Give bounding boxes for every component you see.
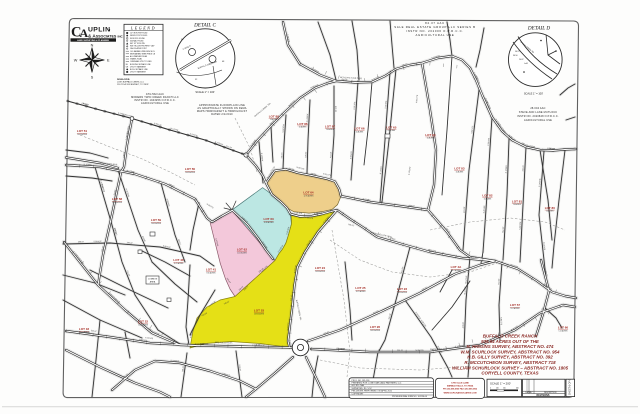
svg-text:LOT 84: LOT 84 [425, 133, 436, 137]
svg-text:LOT 51: LOT 51 [77, 129, 88, 133]
svg-text:28.004 AAC: 28.004 AAC [530, 107, 545, 110]
svg-text:LOT 23: LOT 23 [397, 287, 408, 291]
svg-text:N 12'04'E: N 12'04'E [506, 164, 508, 173]
svg-text:LOT 58: LOT 58 [112, 197, 123, 201]
svg-text:PH 325.388.3800 FAX 325.388.38: PH 325.388.3800 FAX 325.388.3802 [443, 388, 478, 391]
svg-text:SCALE 1" = 200': SCALE 1" = 200' [490, 382, 511, 386]
svg-text:LOT 66: LOT 66 [354, 127, 365, 131]
svg-text:LOT 87: LOT 87 [325, 124, 336, 128]
svg-text:CORYELL COUNTY, TEXAS: CORYELL COUNTY, TEXAS [481, 371, 538, 376]
svg-text:W/N YELLOW PROPERTY CAP: W/N YELLOW PROPERTY CAP [130, 45, 155, 48]
svg-text:939.94 ACRES OUT OF THE: 939.94 ACRES OUT OF THE [481, 339, 540, 344]
svg-text:110 CR 40 200 BURNET, TX 78611: 110 CR 40 200 BURNET, TX 78611 [117, 83, 149, 86]
svg-text:LOT 88: LOT 88 [269, 114, 280, 118]
svg-text:INSTR NO. 2020848 O.P.R.C.C.: INSTR NO. 2020848 O.P.R.C.C. [517, 115, 559, 118]
svg-text:LOT 4A: LOT 4A [451, 265, 463, 269]
svg-text:36.50: 36.50 [513, 55, 518, 57]
svg-text:BLDG. SETBACK LINE: BLDG. SETBACK LINE [130, 68, 149, 71]
svg-text:H. HIGGINS SURVEY, ABSTRACT: H. HIGGINS SURVEY, ABSTRACT NO. 474 [466, 344, 554, 349]
svg-text:SCALE 1" = 100': SCALE 1" = 100' [195, 90, 215, 94]
svg-text:100: 100 [496, 388, 499, 390]
svg-text:LOT 26: LOT 26 [370, 325, 381, 329]
svg-text:AGRICULTURAL USE: AGRICULTURAL USE [415, 33, 454, 37]
svg-text:LOT 80: LOT 80 [545, 206, 556, 210]
svg-text:N 89'12'E: N 89'12'E [416, 350, 425, 352]
svg-text:LOT 65: LOT 65 [386, 125, 397, 129]
svg-text:AGRICULTURAL USE: AGRICULTURAL USE [524, 119, 552, 122]
svg-text:230.15': 230.15' [523, 164, 525, 171]
svg-text:LOT 41: LOT 41 [206, 268, 217, 272]
svg-text:S 88'41'E: S 88'41'E [93, 241, 102, 243]
svg-text:UTILITY EASEMENT: UTILITY EASEMENT [130, 65, 146, 68]
svg-text:56.21: 56.21 [515, 51, 520, 53]
svg-text:MARBLE FALLS, TX 78654: MARBLE FALLS, TX 78654 [447, 385, 474, 388]
svg-text:LOT 57: LOT 57 [510, 303, 521, 307]
svg-text:DETAIL C: DETAIL C [193, 23, 216, 29]
svg-text:24.87: 24.87 [519, 59, 524, 61]
svg-text:OVERHEAD UTILITY LINES: OVERHEAD UTILITY LINES [130, 60, 152, 63]
svg-text:LOT 22: LOT 22 [138, 320, 149, 324]
svg-text:W.M. SCURLOCK SURVEY, ABSTR: W.M. SCURLOCK SURVEY, ABSTRACT NO. 954 [461, 349, 560, 354]
svg-text:BUILDING SETBACK LINE: BUILDING SETBACK LINE [130, 63, 151, 66]
svg-text:LOT 82: LOT 82 [482, 194, 493, 198]
svg-text:L=41: L=41 [524, 63, 528, 65]
svg-text:N 03'27'E: N 03'27'E [500, 317, 502, 326]
svg-text:LOT 81: LOT 81 [512, 199, 523, 203]
svg-text:LOT 66: LOT 66 [558, 326, 569, 330]
svg-text:SHEET 6 OF 6: SHEET 6 OF 6 [569, 378, 572, 395]
svg-text:BUFFALO CREEK RANCH: BUFFALO CREEK RANCH [483, 334, 538, 339]
svg-text:S 14'55'W: S 14'55'W [195, 343, 204, 345]
svg-text:400: 400 [516, 388, 519, 390]
svg-text:LOT 40: LOT 40 [173, 258, 184, 262]
svg-text:WILLIAM SCHURLOCK SURVEY –: WILLIAM SCHURLOCK SURVEY – ABSTRACT NO. … [452, 365, 569, 370]
svg-text:H.B. GILLY SURVEY, ABSTRACT: H.B. GILLY SURVEY, ABSTRACT NO. 392 [467, 355, 553, 360]
svg-text:LOT 83: LOT 83 [454, 167, 465, 171]
svg-text:230.15': 230.15' [397, 350, 404, 352]
svg-text:UTILITY EASEMENT: UTILITY EASEMENT [130, 71, 146, 74]
svg-text:1789 OLLIE LANE: 1789 OLLIE LANE [451, 382, 469, 385]
svg-text:LOT 24: LOT 24 [315, 266, 326, 270]
svg-text:COMMON: COMMON [148, 279, 158, 281]
svg-text:60d NAIL FOUND: 60d NAIL FOUND [130, 39, 144, 42]
svg-text:410.08': 410.08' [463, 321, 465, 328]
svg-text:230.15': 230.15' [548, 148, 555, 150]
svg-text:LOT 64: LOT 64 [303, 191, 314, 195]
svg-text:LAND SURVEYING & PLANNING: LAND SURVEYING & PLANNING [77, 39, 109, 42]
svg-text:198.22': 198.22' [305, 151, 307, 158]
svg-text:WWW.CUPLINASSOCIATES.COM: WWW.CUPLINASSOCIATES.COM [444, 392, 477, 395]
svg-text:R. MCCUTCHEON SURVEY, ABSTR: R. MCCUTCHEON SURVEY, ABSTRACT 718 [464, 360, 556, 365]
svg-text:LOT 53: LOT 53 [254, 309, 265, 313]
svg-text:STEVE AND LANE MUTLOCK: STEVE AND LANE MUTLOCK [519, 111, 558, 114]
svg-text:CALCULATED POINT: CALCULATED POINT [130, 47, 147, 50]
svg-text:LOT 62: LOT 62 [237, 248, 248, 252]
svg-text:DEVELOPER:: DEVELOPER: [117, 79, 130, 81]
svg-text:345.67': 345.67' [78, 241, 85, 243]
svg-text:N: N [91, 43, 94, 47]
svg-text:AREA: AREA [150, 280, 156, 283]
svg-text:◐: ◐ [109, 28, 112, 34]
svg-text:200: 200 [503, 388, 506, 390]
svg-text:LOST BUFFALO CREEK, LLC: LOST BUFFALO CREEK, LLC [117, 81, 145, 84]
svg-text:W: W [74, 58, 78, 62]
svg-text:LOT 25: LOT 25 [355, 286, 366, 290]
svg-text:AGRICULTURAL USE: AGRICULTURAL USE [141, 102, 169, 105]
svg-text:NEW BARBED WIRE FENCE LN: NEW BARBED WIRE FENCE LN [130, 52, 156, 55]
svg-text:DATED 2/1/2010: DATED 2/1/2010 [211, 113, 233, 116]
svg-text:LOT 63: LOT 63 [264, 217, 275, 221]
svg-text:OLD BARBED WIRE FENCE LN: OLD BARBED WIRE FENCE LN [130, 50, 155, 53]
svg-text:LOT 59: LOT 59 [151, 218, 162, 222]
svg-text:512.33': 512.33' [334, 106, 336, 113]
svg-text:L=104.55': L=104.55' [252, 345, 261, 347]
svg-text:SCALE 1" = 100': SCALE 1" = 100' [524, 92, 544, 96]
svg-text:REVISIONS: REVISIONS [536, 394, 549, 397]
svg-text:DETAIL D: DETAIL D [527, 26, 550, 32]
svg-text:ALL WEATHER ROAD: ALL WEATHER ROAD [130, 55, 148, 58]
svg-text:& ASSOCIATES INC: & ASSOCIATES INC [88, 33, 124, 38]
svg-text:0: 0 [490, 388, 491, 390]
svg-text:LOT 50: LOT 50 [185, 167, 196, 171]
svg-text:GRAVEL ROAD: GRAVEL ROAD [130, 58, 143, 61]
svg-text:WHITE EYES RUN: WHITE EYES RUN [430, 349, 448, 351]
svg-text:LEGEND: LEGEND [130, 25, 156, 30]
svg-text:PROFESSIONAL FIRM NO. 101156-0: PROFESSIONAL FIRM NO. 101156-00 [392, 395, 428, 398]
svg-text:230.15': 230.15' [281, 152, 283, 159]
